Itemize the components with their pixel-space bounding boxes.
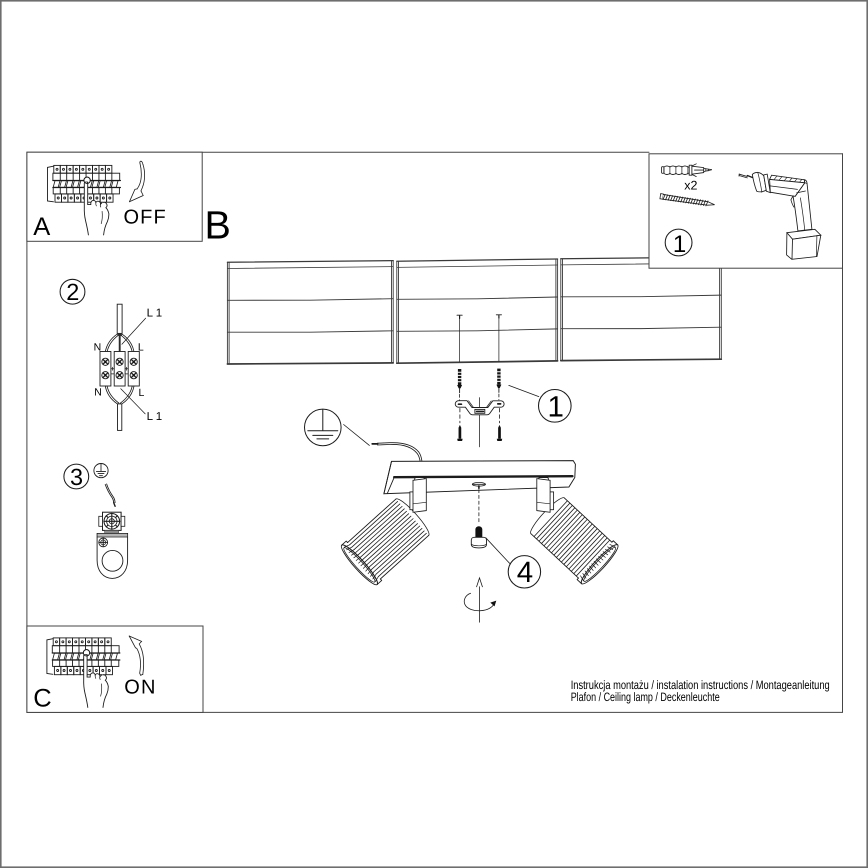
svg-text:A: A (33, 213, 50, 241)
svg-text:B: B (205, 204, 231, 248)
svg-text:L: L (138, 341, 144, 353)
svg-text:2: 2 (66, 279, 79, 305)
svg-text:C: C (33, 685, 51, 713)
svg-text:1: 1 (673, 231, 686, 258)
svg-text:x2: x2 (684, 178, 697, 192)
svg-text:L 1: L 1 (147, 411, 163, 423)
svg-text:OFF: OFF (124, 207, 167, 229)
svg-text:1: 1 (548, 390, 564, 423)
svg-text:4: 4 (517, 556, 533, 589)
svg-text:ON: ON (124, 677, 156, 699)
svg-text:L 1: L 1 (147, 308, 163, 320)
svg-text:N: N (94, 341, 102, 353)
svg-text:L: L (139, 387, 145, 399)
svg-text:Plafon / Ceiling lamp / Decken: Plafon / Ceiling lamp / Deckenleuchte (571, 690, 720, 704)
svg-text:3: 3 (70, 464, 83, 490)
svg-text:N: N (94, 387, 102, 399)
